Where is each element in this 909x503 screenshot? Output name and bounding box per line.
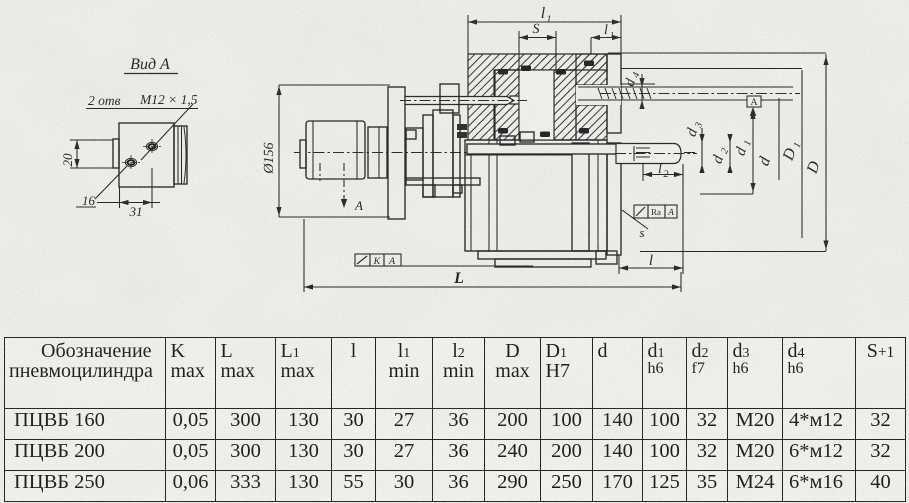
svg-text:А: А [667, 208, 674, 218]
svg-text:Ra: Ra [651, 207, 661, 217]
svg-text:1: 1 [610, 30, 615, 40]
svg-text:S: S [533, 22, 540, 37]
svg-text:К: К [373, 256, 382, 267]
svg-text:L: L [453, 270, 464, 287]
svg-text:31: 31 [129, 204, 143, 219]
svg-text:Вид А: Вид А [130, 56, 170, 73]
svg-text:1: 1 [742, 139, 754, 147]
svg-text:20: 20 [60, 153, 75, 167]
svg-text:d: d [755, 154, 774, 168]
svg-text:l: l [658, 162, 662, 177]
svg-text:А: А [388, 256, 396, 267]
svg-text:l: l [604, 23, 608, 38]
svg-text:16: 16 [82, 193, 96, 208]
svg-text:D: D [803, 159, 823, 177]
svg-text:2: 2 [719, 147, 731, 155]
svg-text:3: 3 [693, 121, 705, 130]
svg-text:2: 2 [664, 169, 669, 180]
svg-text:М12 × 1,5: М12 × 1,5 [139, 92, 198, 107]
svg-text:l: l [541, 5, 546, 22]
svg-text:4: 4 [631, 71, 643, 79]
svg-text:1: 1 [547, 14, 552, 25]
svg-text:d: d [732, 145, 750, 158]
svg-text:l: l [649, 253, 653, 269]
svg-text:Ø156: Ø156 [262, 142, 277, 174]
svg-text:А: А [354, 198, 363, 213]
svg-text:s: s [639, 225, 644, 240]
svg-text:А: А [750, 97, 758, 108]
svg-text:2 отв: 2 отв [88, 93, 121, 108]
svg-text:d: d [709, 153, 727, 166]
